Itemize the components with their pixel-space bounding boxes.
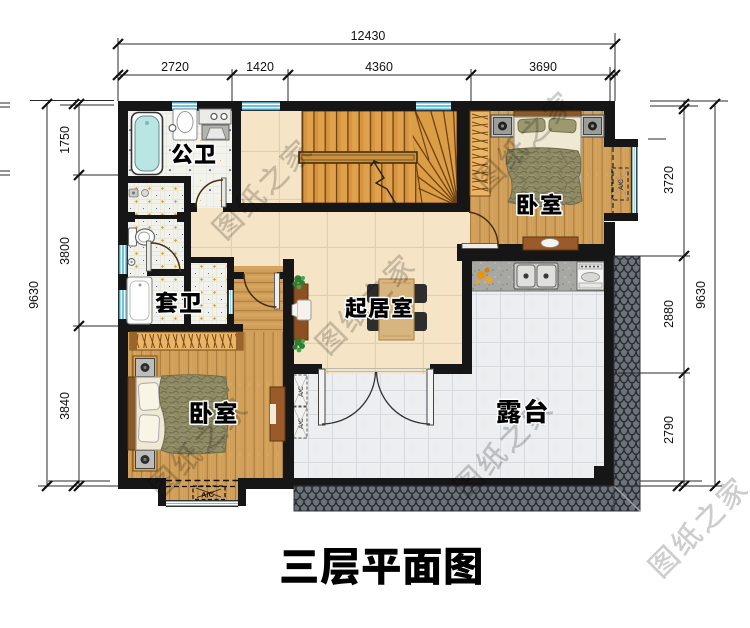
svg-text:2790: 2790 — [662, 416, 676, 444]
svg-text:9630: 9630 — [694, 281, 708, 309]
svg-text:2720: 2720 — [161, 60, 189, 74]
svg-text:3840: 3840 — [58, 392, 72, 420]
svg-text:12430: 12430 — [351, 29, 386, 43]
svg-text:3690: 3690 — [529, 60, 557, 74]
svg-text:3720: 3720 — [662, 166, 676, 194]
svg-text:A/C: A/C — [298, 386, 305, 397]
svg-text:9630: 9630 — [27, 281, 41, 309]
svg-text:A/C: A/C — [201, 490, 215, 500]
svg-text:A/C: A/C — [618, 179, 625, 190]
svg-text:1750: 1750 — [58, 126, 72, 154]
svg-text:2880: 2880 — [662, 300, 676, 328]
svg-text:4360: 4360 — [365, 60, 393, 74]
svg-text:3800: 3800 — [58, 237, 72, 265]
svg-text:A/C: A/C — [298, 418, 305, 429]
svg-text:1420: 1420 — [246, 60, 274, 74]
